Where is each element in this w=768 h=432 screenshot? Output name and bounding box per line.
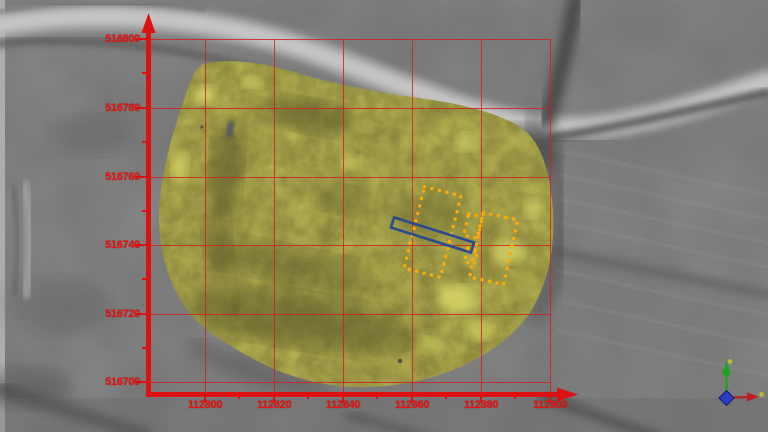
x-axis-arrowhead-icon: [557, 388, 578, 402]
view-orientation-gizmo[interactable]: [719, 359, 764, 405]
gizmo-origin-cube-icon: [719, 391, 734, 406]
blue-interpretation-rect[interactable]: [391, 217, 474, 252]
dashed-rect-east[interactable]: [470, 213, 518, 285]
gizmo-right-arrowhead-icon: [747, 393, 759, 402]
dashed-rect-west[interactable]: [404, 187, 461, 278]
y-axis-arrowhead-icon: [142, 13, 156, 33]
gizmo-up-tip-marker-icon: [728, 359, 733, 364]
vector-overlays: [0, 0, 768, 432]
gizmo-right-tip-marker-icon: [759, 392, 764, 397]
map-viewport[interactable]: 112800 112820 112840 112860 112880 11290…: [0, 0, 768, 432]
dashed-interpretation-group[interactable]: [404, 187, 517, 285]
dashed-rect-connector-upper[interactable]: [464, 214, 483, 239]
